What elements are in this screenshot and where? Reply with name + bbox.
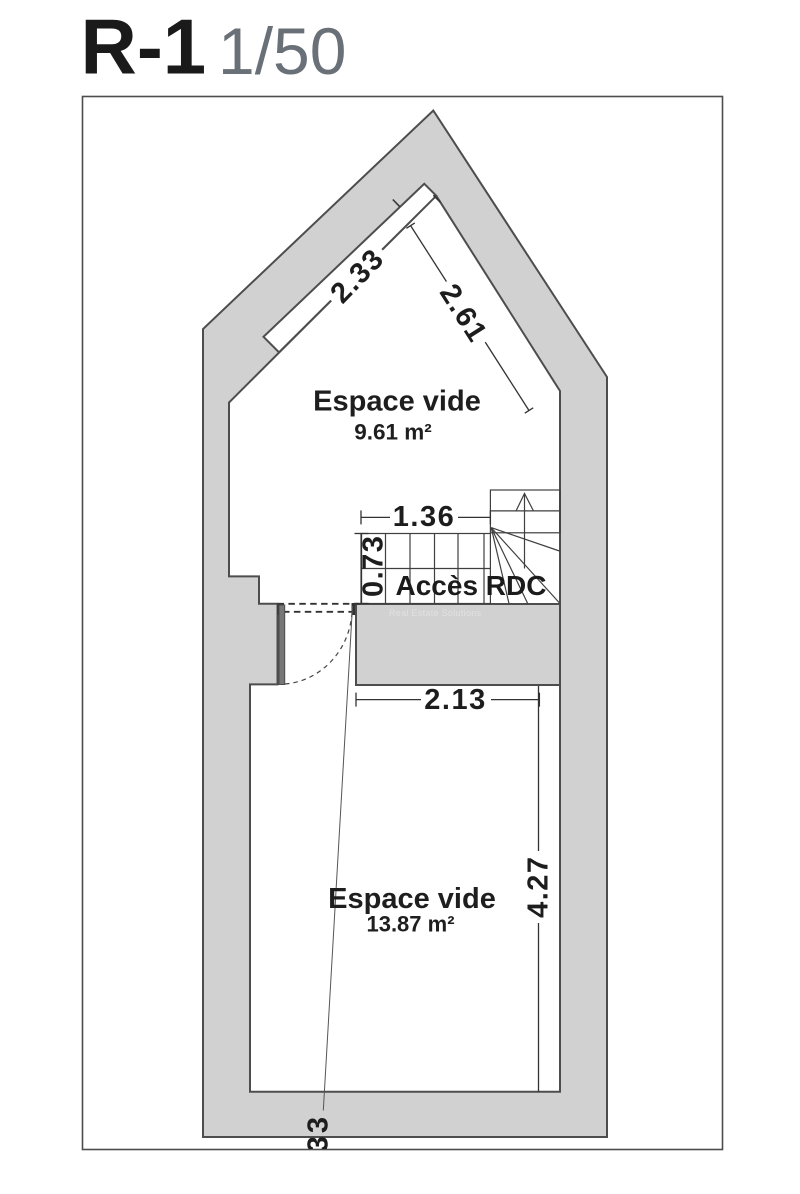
svg-text:Real Estate Solutions: Real Estate Solutions xyxy=(389,608,482,618)
svg-text:Accès RDC: Accès RDC xyxy=(396,570,547,601)
svg-text:0.73: 0.73 xyxy=(358,535,390,597)
svg-text:13.87 m²: 13.87 m² xyxy=(366,912,454,937)
svg-text:Espace vide: Espace vide xyxy=(328,883,496,915)
svg-text:2.13: 2.13 xyxy=(424,684,486,716)
svg-text:R-1: R-1 xyxy=(81,3,207,91)
svg-text:4.27: 4.27 xyxy=(522,855,554,917)
svg-text:Espace vide: Espace vide xyxy=(313,386,481,418)
svg-text:1.36: 1.36 xyxy=(393,501,455,533)
svg-text:1/50: 1/50 xyxy=(218,14,346,88)
svg-text:9.61 m²: 9.61 m² xyxy=(354,420,432,445)
